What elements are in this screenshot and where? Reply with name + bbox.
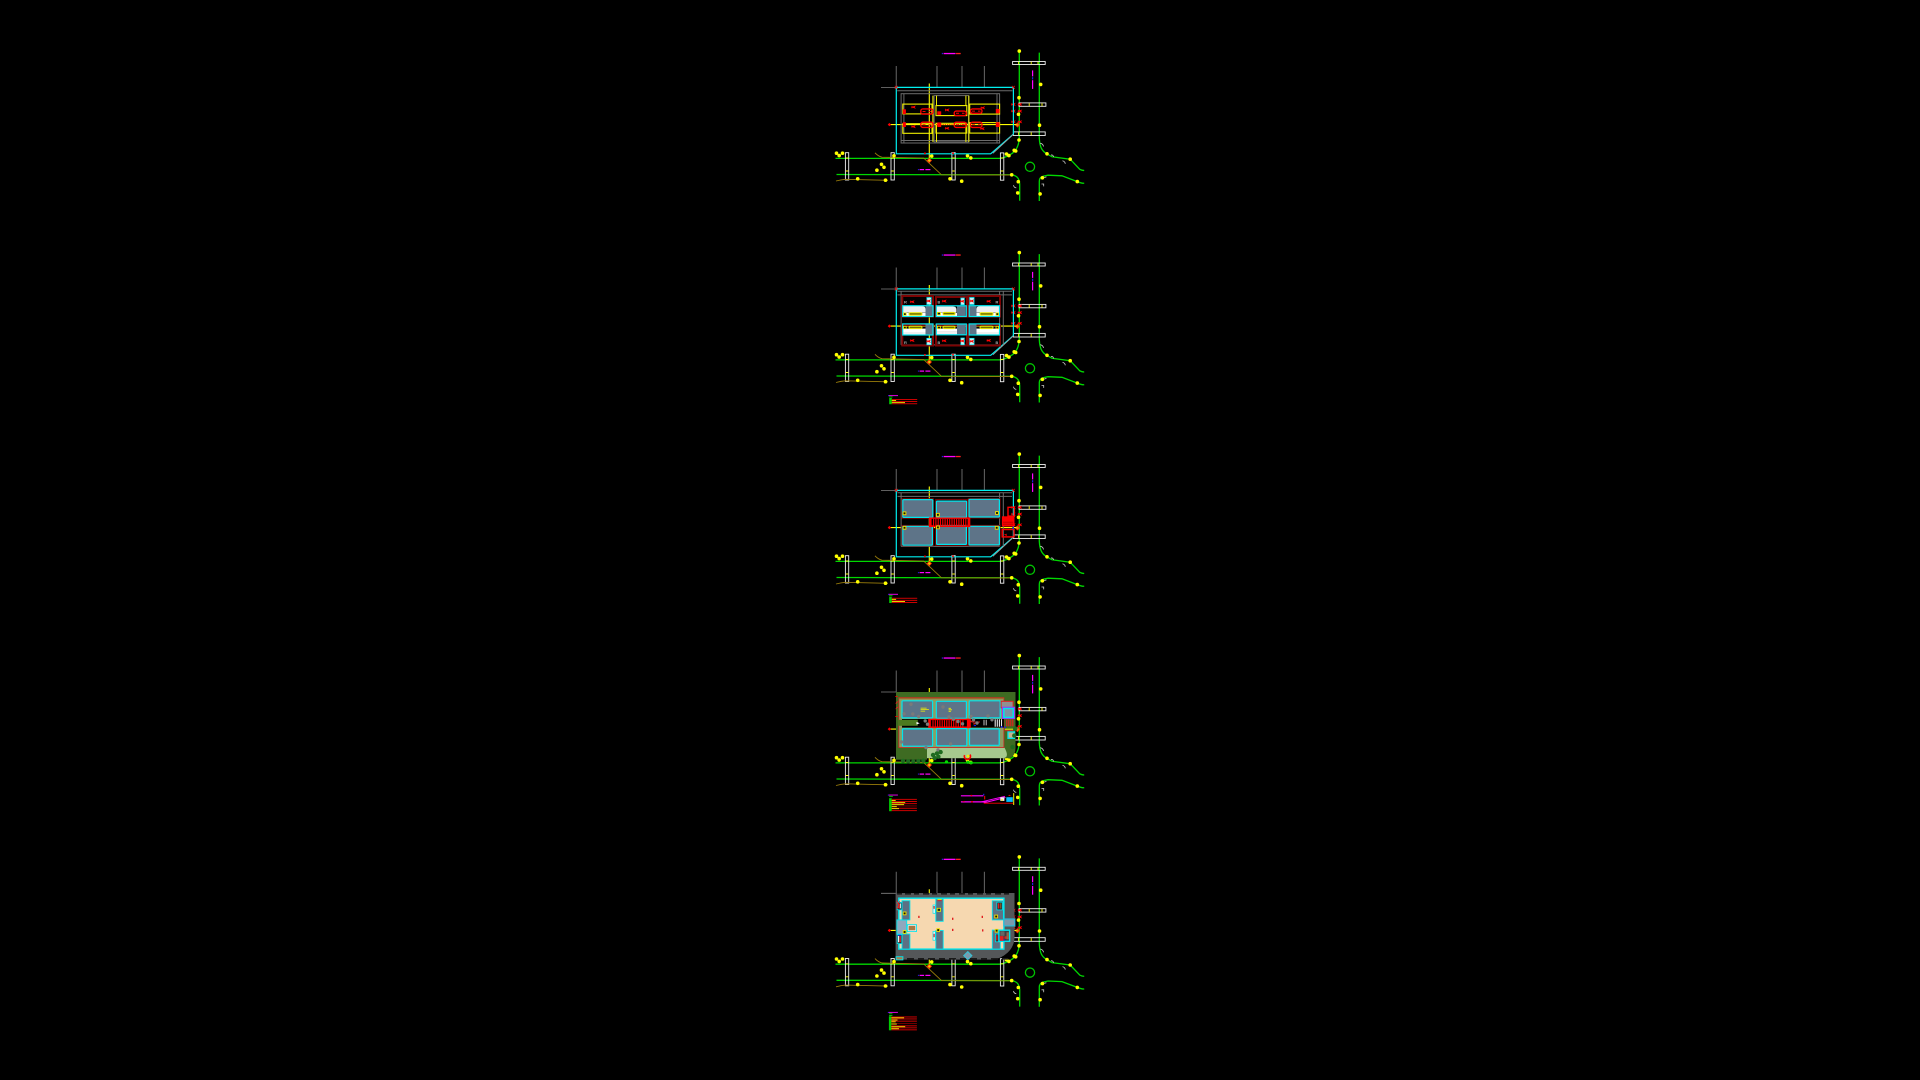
svg-text:B: B — [938, 300, 941, 305]
svg-text:B: B — [996, 340, 999, 345]
svg-text:B: B — [938, 340, 941, 345]
svg-text:R: R — [904, 300, 907, 305]
svg-text:R: R — [904, 340, 907, 345]
svg-text:R: R — [996, 300, 999, 305]
